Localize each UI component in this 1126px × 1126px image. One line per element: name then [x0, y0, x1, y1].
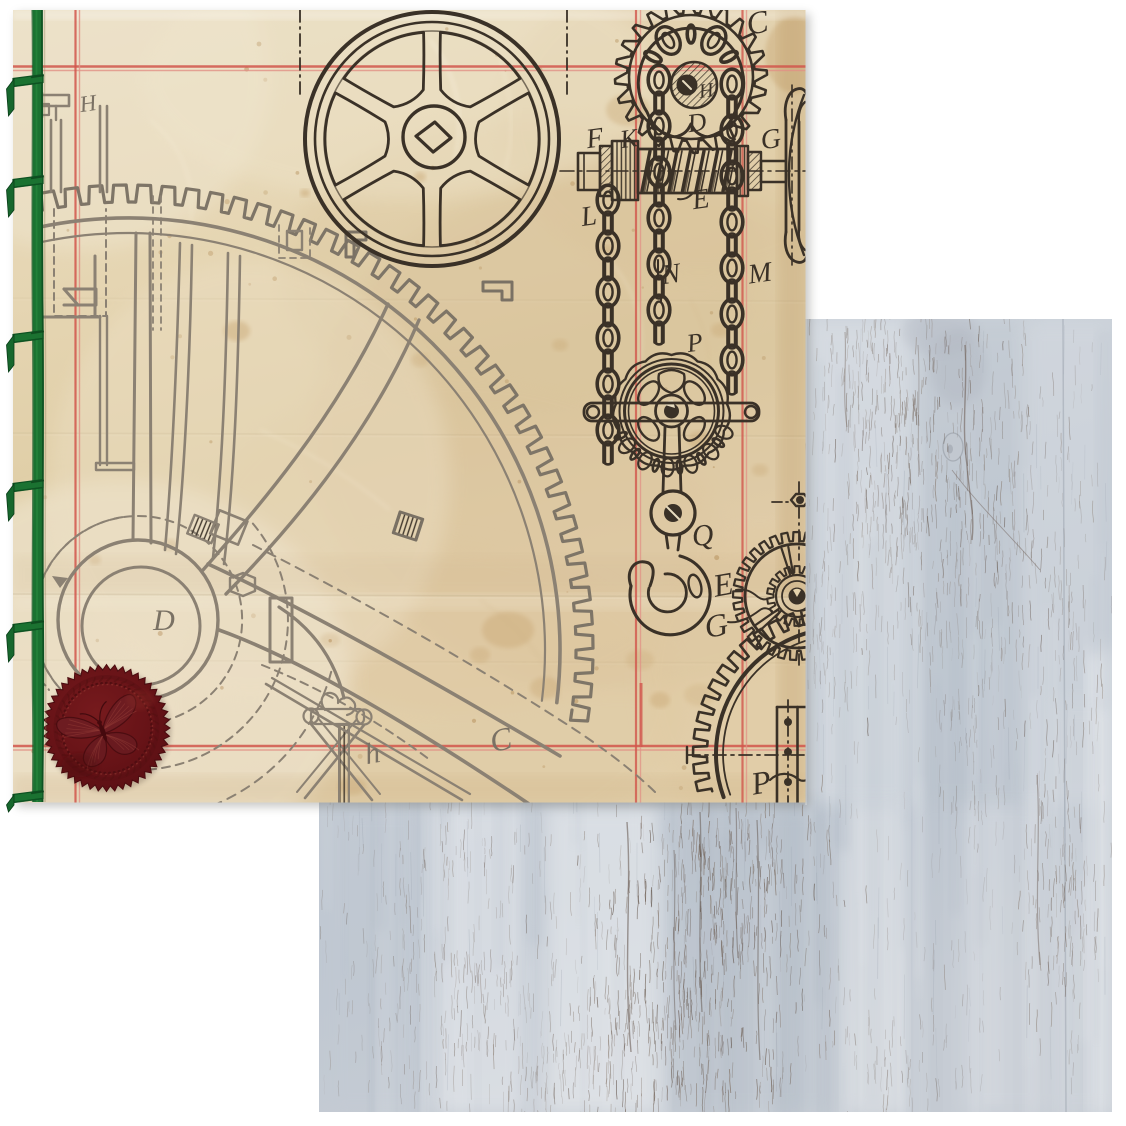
svg-text:G: G — [759, 123, 783, 157]
svg-text:D: D — [152, 604, 175, 637]
